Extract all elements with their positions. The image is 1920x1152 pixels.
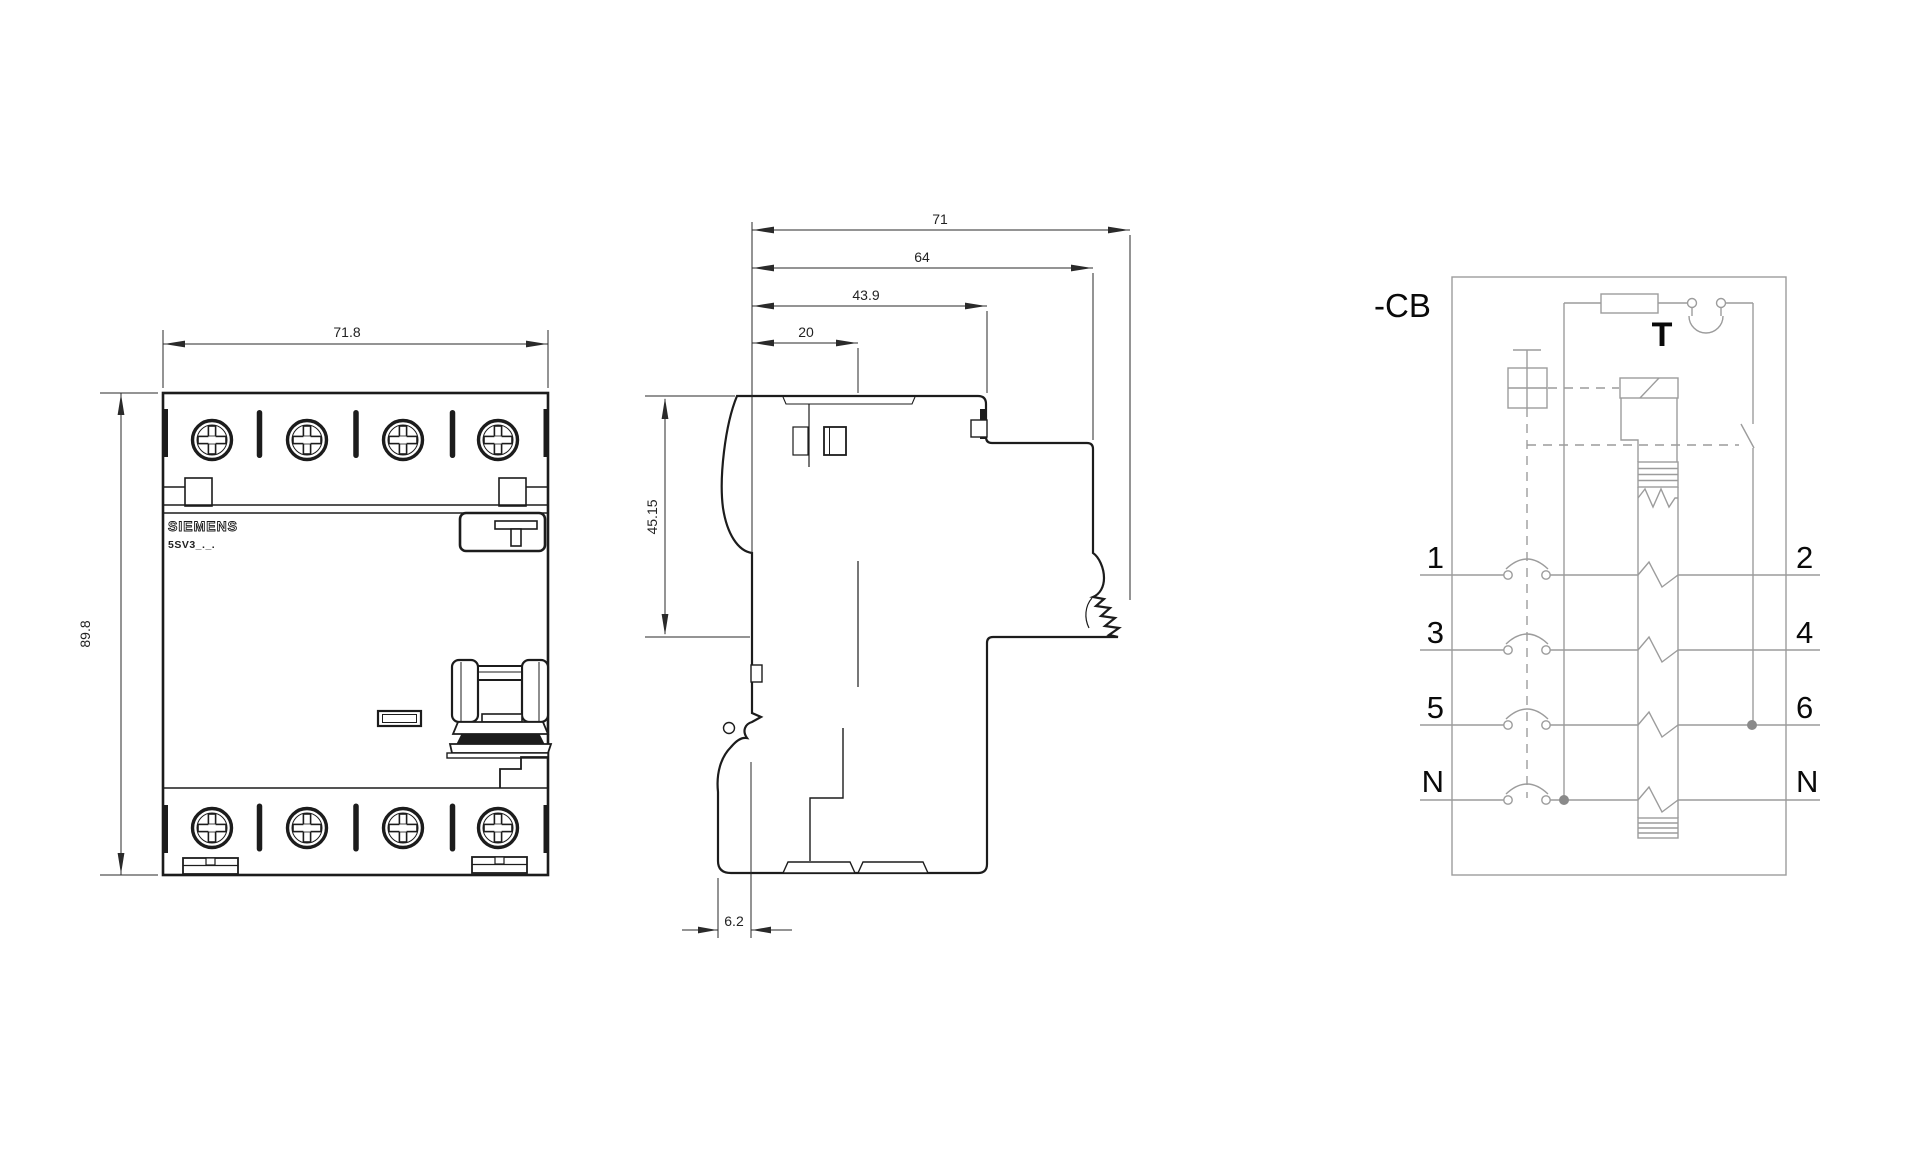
terminal-label-5: 5 — [1427, 690, 1444, 725]
dimension-height — [100, 393, 158, 875]
toggle-profile — [793, 427, 808, 455]
side-view: 71 64 43.9 20 45.15 6.2 — [644, 211, 1130, 938]
window-profile — [824, 427, 846, 455]
front-view: SIEMENS 5SV3_._. — [77, 324, 551, 875]
trip-relay — [1620, 378, 1678, 462]
side-foot — [858, 862, 928, 873]
rear-latch — [971, 420, 987, 437]
test-button-label: T — [1652, 316, 1673, 354]
test-pushbutton-icon — [1689, 316, 1723, 333]
dim-housing-depth-label: 64 — [914, 249, 930, 265]
test-button-t-stem — [511, 529, 521, 546]
side-profile-outline — [718, 396, 1119, 873]
pole-conductors — [1420, 575, 1820, 800]
side-foot — [783, 862, 855, 873]
terminal-label-3: 3 — [1427, 615, 1444, 650]
drawing-canvas: SIEMENS 5SV3_._. — [0, 0, 1920, 1152]
clip-pivot-circle — [724, 723, 735, 734]
junction-dot-phase6 — [1747, 720, 1757, 730]
dim-height-label: 89.8 — [77, 620, 93, 647]
test-switch-blade — [1741, 424, 1754, 448]
junction-dot-neutral — [1559, 795, 1569, 805]
circuit-border — [1452, 277, 1786, 875]
dim-front-depth-label: 20 — [798, 324, 814, 340]
terminal-label-1: 1 — [1427, 540, 1444, 575]
front-face-tab — [751, 665, 762, 682]
edge-slot-tick — [544, 805, 549, 853]
dim-bottom-offset-label: 6.2 — [724, 913, 744, 929]
circuit-diagram: -CB T — [1374, 277, 1820, 875]
technical-drawing-page: SIEMENS 5SV3_._. — [0, 0, 1920, 1152]
dim-width-label: 71.8 — [333, 324, 360, 340]
model-label: 5SV3_._. — [168, 539, 215, 551]
terminal-label-2: 2 — [1796, 540, 1813, 575]
front-body-outline — [163, 393, 548, 875]
current-transformer — [1638, 462, 1678, 838]
terminal-label-n-left: N — [1422, 764, 1444, 799]
edge-slot-tick — [164, 409, 169, 457]
terminal-label-n-right: N — [1796, 764, 1818, 799]
brand-label: SIEMENS — [168, 518, 238, 534]
terminal-label-6: 6 — [1796, 690, 1813, 725]
dim-rail-depth-label: 43.9 — [852, 287, 879, 303]
test-button[interactable] — [460, 513, 545, 551]
test-button-t-bar — [495, 521, 537, 529]
dim-total-depth-label: 71 — [932, 211, 948, 227]
test-circuit — [1564, 294, 1754, 800]
device-designation-label: -CB — [1374, 287, 1431, 324]
edge-slot-tick — [164, 805, 169, 853]
secondary-winding-zigzag — [1638, 489, 1678, 507]
terminal-label-4: 4 — [1796, 615, 1813, 650]
dim-front-height-label: 45.15 — [644, 499, 660, 534]
edge-slot-tick — [544, 409, 549, 457]
